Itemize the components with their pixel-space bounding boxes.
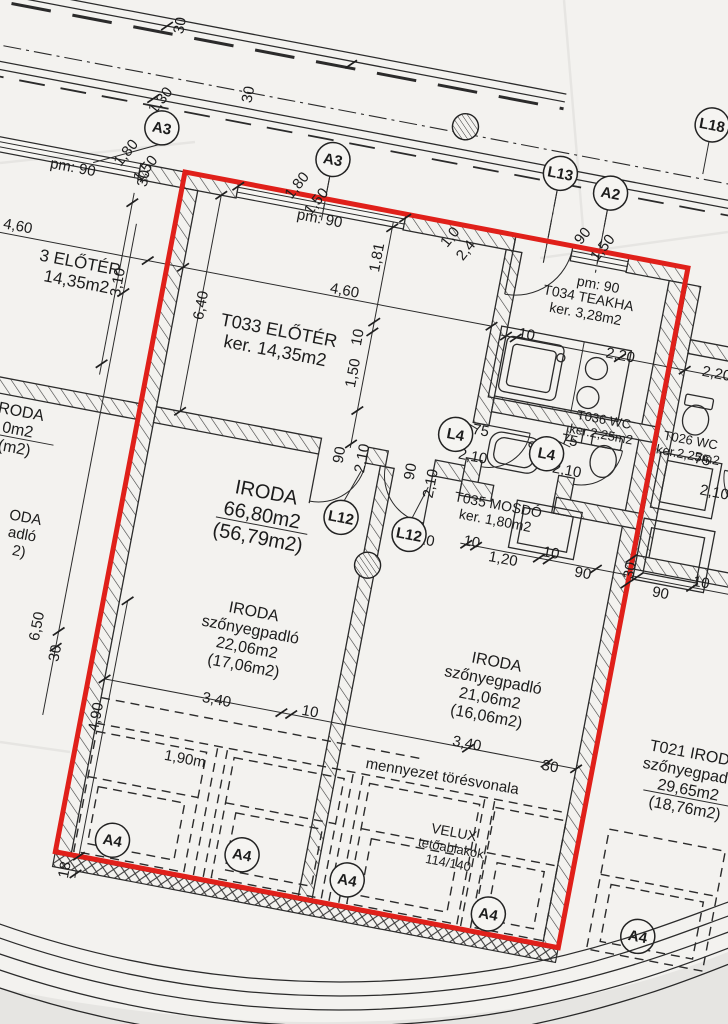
dimension-label: 90: [401, 462, 421, 482]
floorplan-page: T033 ELŐTÉRker. 14,35m2IRODA66,80m2(56,7…: [0, 0, 728, 1024]
dimension-label: 10: [691, 573, 711, 593]
dimension-label: 10: [541, 543, 561, 563]
dimension-label: 30: [134, 169, 154, 189]
dimension-label: 30: [45, 643, 65, 663]
dimension-label: 10: [462, 532, 482, 552]
dimension-label: 90: [573, 563, 593, 583]
grid-marker-a3: A3: [151, 118, 173, 138]
dimension-label: 90: [330, 445, 350, 465]
dimension-label: 10: [517, 325, 537, 345]
dimension-label: 30: [540, 757, 560, 777]
dimension-label: 30: [238, 85, 258, 105]
dimension-label: 30: [620, 561, 640, 581]
dimension-label: 10: [300, 702, 320, 722]
floorplan-canvas: T033 ELŐTÉRker. 14,35m2IRODA66,80m2(56,7…: [0, 0, 728, 1024]
dimension-label: 75: [692, 450, 712, 470]
grid-marker-a3: A3: [322, 150, 344, 170]
dimension-label: 18: [55, 860, 75, 880]
dimension-label: 10: [348, 328, 368, 348]
dimension-label: 90: [651, 583, 671, 603]
dimension-label: 30: [170, 16, 190, 36]
dimension-label: 75: [471, 421, 491, 441]
grid-marker-a2: A2: [599, 184, 621, 204]
